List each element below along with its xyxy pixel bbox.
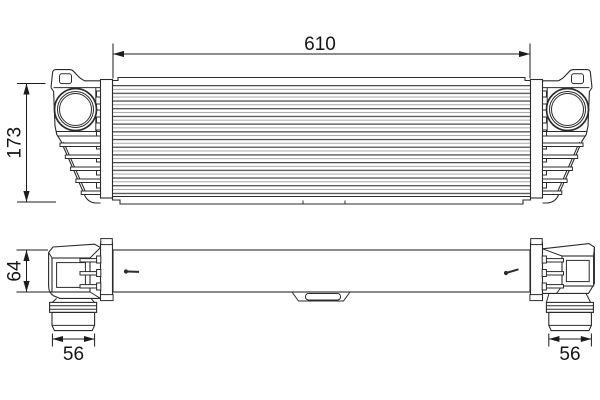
drawing-canvas: 610 173 (0, 0, 600, 400)
dimension-pipe-right: 56 (549, 334, 592, 366)
crimp-tooth (97, 130, 101, 136)
arrowhead-right-icon (519, 51, 530, 57)
side-plate (101, 80, 113, 199)
rib-block (542, 270, 546, 277)
notch-slot (306, 294, 341, 301)
rib-block (97, 283, 101, 290)
inlet-port-right (547, 89, 589, 131)
side-plate (531, 80, 543, 199)
dimension-label-pipe-right: 56 (559, 344, 580, 365)
connector-left (49, 239, 114, 301)
dimension-label-pipe-left: 56 (63, 344, 84, 365)
tank-rib (543, 191, 562, 195)
arrowhead-right-icon (84, 336, 95, 342)
arrowhead-right-icon (581, 336, 592, 342)
tank-rib (76, 179, 101, 183)
dimension-pipe-left: 56 (52, 334, 94, 366)
tank-rib (65, 155, 100, 159)
flange-tab-top (531, 239, 543, 245)
connector-right (530, 239, 595, 301)
mounting-bracket (51, 70, 101, 88)
tank-rib (543, 179, 568, 183)
crimp-tooth (543, 130, 547, 136)
dimension-label-height: 173 (5, 127, 26, 159)
tank-rib (543, 167, 573, 171)
pipe-bead (50, 302, 97, 312)
rib-block (97, 256, 101, 263)
arrowhead-left-icon (113, 51, 124, 57)
tank-rib (71, 167, 101, 171)
flange-plate (101, 243, 113, 299)
pipe-flare (546, 293, 590, 302)
body-bar (113, 250, 530, 292)
front-view: 610 173 (5, 34, 593, 204)
crimp-tooth (543, 117, 547, 123)
flange-tab-bottom (101, 295, 114, 301)
pipe-flare (52, 298, 94, 302)
tank-right (543, 70, 593, 203)
tank-rib (543, 155, 578, 159)
crimp-tooth (543, 91, 547, 97)
tank-rib (60, 143, 101, 147)
crimp-tooth (97, 117, 101, 123)
tank-left (51, 70, 101, 203)
tank-rib (81, 191, 100, 195)
inlet-port-left (55, 89, 97, 131)
arrowhead-left-icon (549, 336, 560, 342)
dimension-body-depth: 64 (5, 250, 54, 292)
mounting-hole (60, 74, 72, 84)
pipe-stub (549, 312, 592, 330)
pipe-right (546, 293, 593, 330)
pipe-stub (52, 312, 95, 330)
flange-tab-bottom (530, 295, 543, 301)
rib-block (542, 283, 546, 290)
dimension-core-height: 173 (5, 84, 57, 203)
arrowhead-down-icon (23, 191, 29, 202)
dimension-overall-width: 610 (113, 34, 530, 79)
arrowhead-left-icon (52, 336, 63, 342)
rib-block (97, 270, 101, 277)
dimension-label-depth: 64 (5, 260, 26, 282)
dimension-label-width: 610 (304, 34, 336, 55)
pipe-bead (546, 302, 593, 312)
core-bottom-edge (113, 196, 531, 204)
mounting-bracket (543, 70, 593, 88)
core-top-edge (113, 78, 531, 86)
arrowhead-up-icon (23, 84, 29, 95)
bottom-view: 64 56 56 (5, 239, 595, 365)
flange-tab-top (101, 239, 113, 245)
pipe-left (50, 298, 97, 330)
rib-block (542, 256, 546, 263)
tank-rib (543, 143, 584, 147)
arrowhead-up-icon (23, 250, 29, 261)
mounting-hole (572, 74, 584, 84)
intercooler-core (113, 78, 531, 205)
core-fins (113, 85, 531, 196)
arrowhead-down-icon (23, 281, 29, 292)
technical-drawing: 610 173 (0, 0, 600, 400)
flange-plate (531, 243, 543, 299)
crimp-tooth (97, 91, 101, 97)
